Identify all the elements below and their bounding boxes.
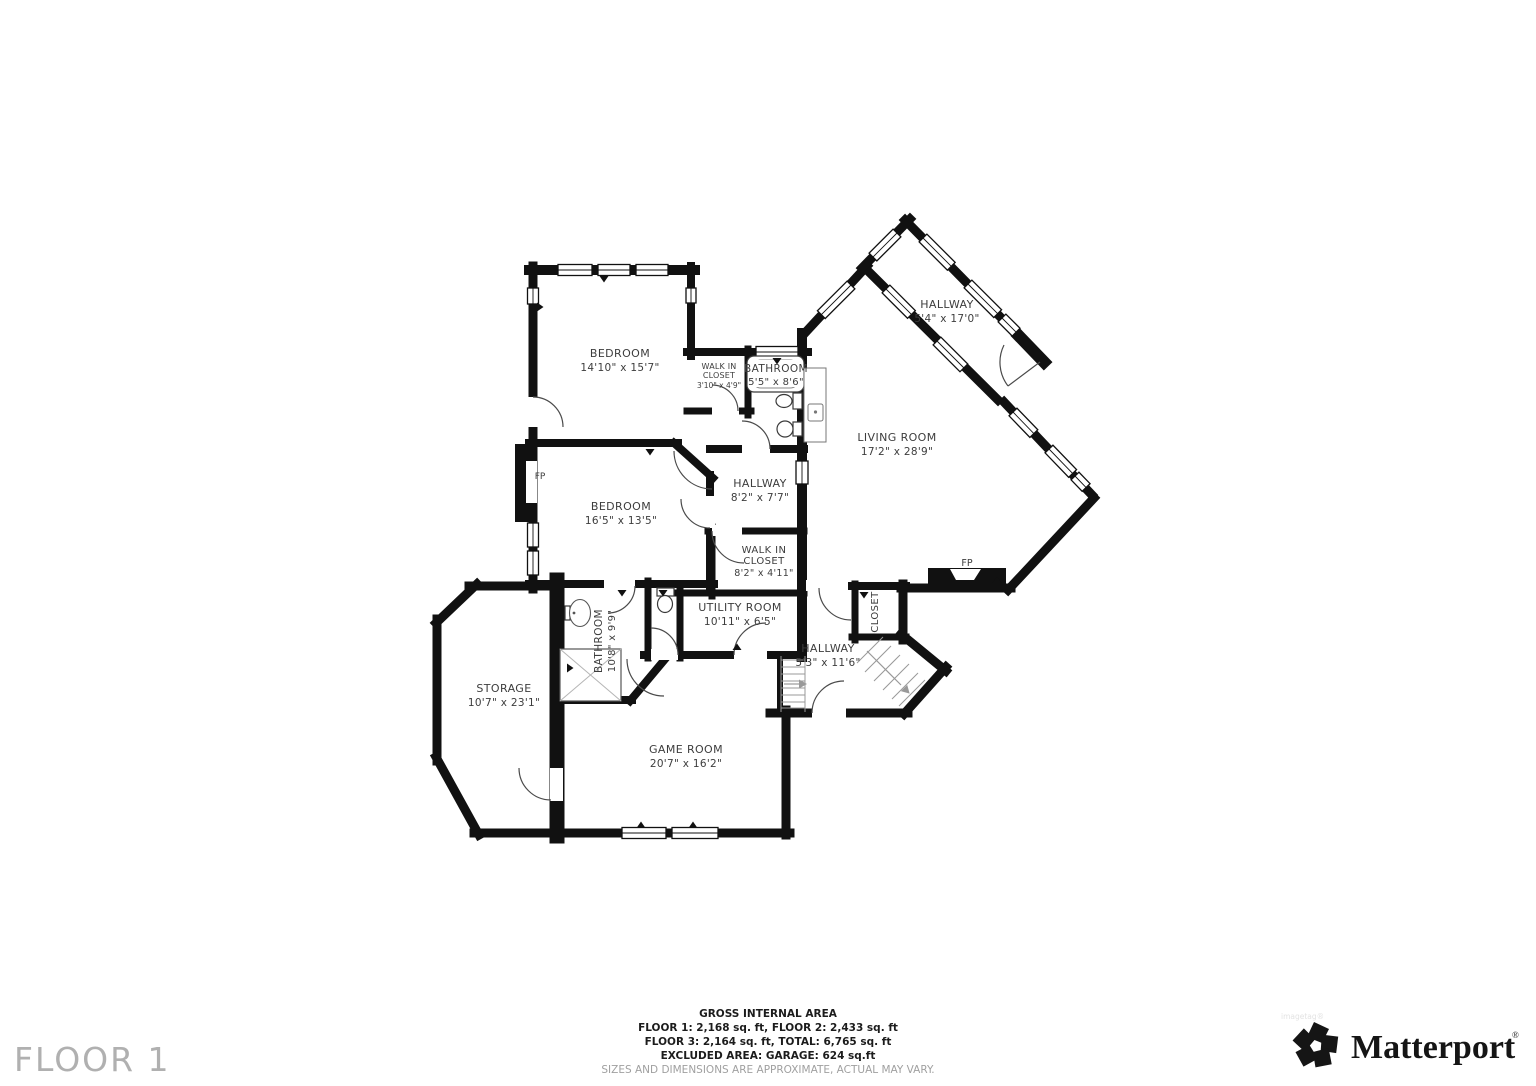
label-hall-upper-name: HALLWAY bbox=[920, 298, 974, 311]
label-bath-lower-name: BATHROOM bbox=[593, 609, 605, 673]
label-wic-lower-1: WALK IN bbox=[742, 545, 787, 556]
winder-direction-arrow bbox=[867, 651, 901, 685]
winder-arrow-head bbox=[901, 685, 913, 697]
floor-plan-canvas: BEDROOM 14'10" x 15'7" WALK IN CLOSET 3'… bbox=[0, 0, 1536, 1086]
label-living-name: LIVING ROOM bbox=[857, 431, 936, 444]
area-summary: GROSS INTERNAL AREA FLOOR 1: 2,168 sq. f… bbox=[601, 1008, 934, 1076]
floor-title: FLOOR 1 bbox=[14, 1040, 171, 1079]
area-line-3: EXCLUDED AREA: GARAGE: 624 sq.ft bbox=[661, 1050, 876, 1062]
label-utility-name: UTILITY ROOM bbox=[698, 601, 782, 614]
label-bedroom1-dims: 14'10" x 15'7" bbox=[580, 362, 659, 374]
label-bedroom1-name: BEDROOM bbox=[590, 347, 650, 360]
label-storage-name: STORAGE bbox=[476, 682, 531, 695]
label-living-dims: 17'2" x 28'9" bbox=[861, 446, 933, 458]
label-hall-lower-name: HALLWAY bbox=[801, 642, 855, 655]
label-bath-lower-dims: 10'8" x 9'9" bbox=[607, 610, 618, 672]
label-wic-lower-dims: 8'2" x 4'11" bbox=[734, 568, 793, 579]
label-fireplace-bedroom2: FP bbox=[535, 472, 546, 482]
toilet-upper bbox=[793, 393, 802, 409]
label-utility-dims: 10'11" x 6'5" bbox=[704, 616, 776, 628]
label-hall-upper-dims: 5'4" x 17'0" bbox=[914, 313, 979, 325]
label-hall-lower-dims: 5'3" x 11'6" bbox=[795, 657, 860, 669]
sink-upper bbox=[793, 422, 802, 436]
label-hall-mid-dims: 8'2" x 7'7" bbox=[731, 492, 789, 504]
label-closet: CLOSET bbox=[870, 591, 881, 633]
label-bedroom2-name: BEDROOM bbox=[591, 500, 651, 513]
floor-plan-page: BEDROOM 14'10" x 15'7" WALK IN CLOSET 3'… bbox=[0, 0, 1536, 1086]
label-bath-upper-dims: 5'5" x 8'6" bbox=[748, 377, 804, 388]
label-game-name: GAME ROOM bbox=[649, 743, 723, 756]
label-hall-mid-name: HALLWAY bbox=[733, 477, 787, 490]
label-storage-dims: 10'7" x 23'1" bbox=[468, 697, 540, 709]
label-bath-upper-name: BATHROOM bbox=[744, 363, 808, 375]
windows bbox=[528, 229, 1091, 838]
fireplace-bedroom2-firebox bbox=[526, 461, 537, 503]
label-wic-lower-2: CLOSET bbox=[743, 556, 785, 567]
label-wic-upper-dims: 3'10" x 4'9" bbox=[697, 381, 741, 390]
matterport-wordmark: Matterport bbox=[1351, 1029, 1516, 1066]
label-game-dims: 20'7" x 16'2" bbox=[650, 758, 722, 770]
gross-internal-area-title: GROSS INTERNAL AREA bbox=[699, 1008, 838, 1020]
matterport-logo-icon bbox=[1290, 1022, 1342, 1073]
label-wic-upper-1: WALK IN bbox=[702, 362, 737, 371]
label-wic-upper-2: CLOSET bbox=[703, 371, 735, 380]
area-disclaimer: SIZES AND DIMENSIONS ARE APPROXIMATE, AC… bbox=[601, 1064, 934, 1076]
matterport-brand: imagetag® Matterport ® bbox=[1281, 1012, 1519, 1073]
label-fireplace-living: FP bbox=[961, 558, 972, 569]
watermark-text: imagetag® bbox=[1281, 1012, 1324, 1021]
label-closet-name: CLOSET bbox=[870, 591, 881, 633]
registered-mark: ® bbox=[1512, 1030, 1519, 1040]
area-line-2: FLOOR 3: 2,164 sq. ft, TOTAL: 6,765 sq. … bbox=[645, 1036, 892, 1048]
area-line-1: FLOOR 1: 2,168 sq. ft, FLOOR 2: 2,433 sq… bbox=[638, 1022, 898, 1034]
label-bedroom2-dims: 16'5" x 13'5" bbox=[585, 515, 657, 527]
